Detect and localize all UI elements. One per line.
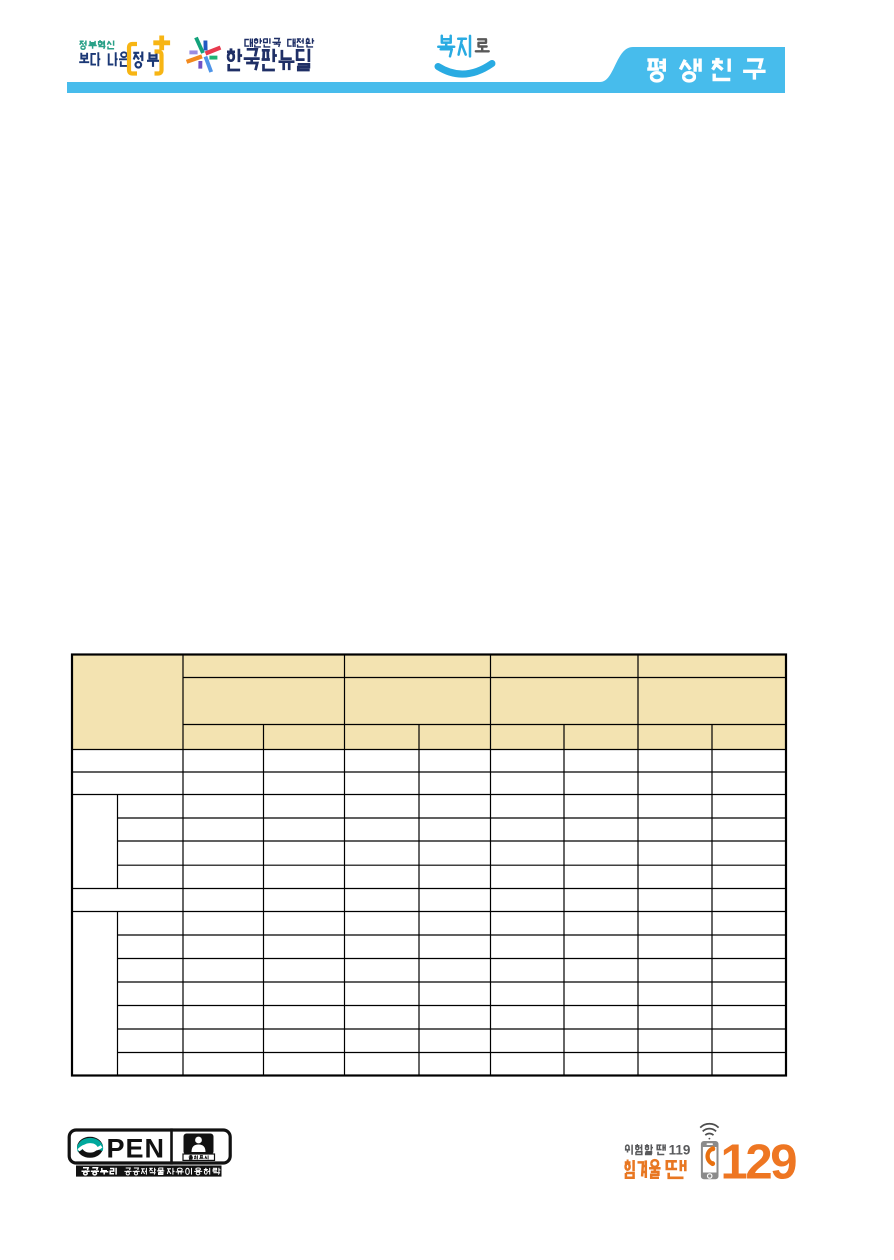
- svg-text:PEN: PEN: [107, 1134, 166, 1164]
- svg-text:129: 129: [721, 1136, 797, 1190]
- svg-text:119: 119: [669, 1143, 691, 1158]
